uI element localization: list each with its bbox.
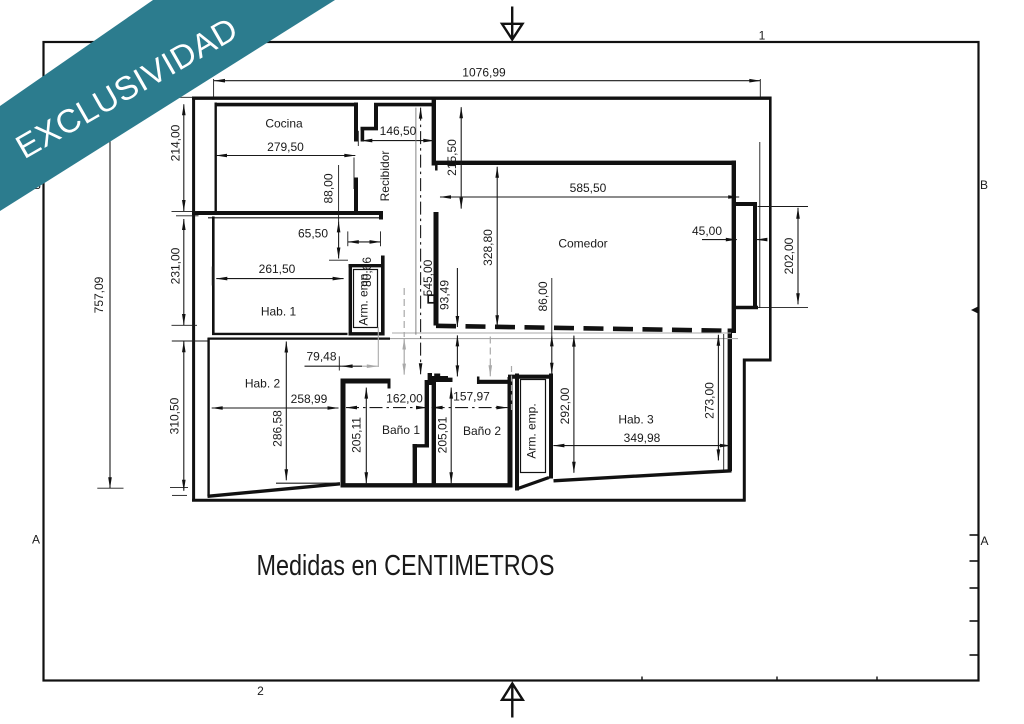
svg-text:162,00: 162,00	[386, 392, 423, 406]
svg-text:261,50: 261,50	[259, 262, 296, 276]
svg-text:2: 2	[257, 684, 264, 698]
svg-text:273,00: 273,00	[703, 382, 717, 419]
svg-text:292,00: 292,00	[558, 387, 572, 424]
svg-text:258,99: 258,99	[291, 392, 328, 406]
svg-text:231,00: 231,00	[169, 247, 183, 284]
svg-text:A: A	[32, 533, 40, 547]
svg-text:328,80: 328,80	[481, 229, 495, 266]
svg-text:1: 1	[759, 29, 766, 43]
svg-text:214,00: 214,00	[169, 124, 183, 161]
svg-text:Comedor: Comedor	[558, 237, 607, 251]
svg-text:65,50: 65,50	[298, 227, 328, 241]
svg-text:1076,99: 1076,99	[462, 66, 506, 80]
svg-text:Hab. 2: Hab. 2	[245, 377, 281, 391]
svg-text:146,50: 146,50	[380, 124, 417, 138]
svg-text:157,97: 157,97	[453, 390, 490, 404]
svg-text:93,49: 93,49	[438, 280, 452, 310]
svg-text:215,50: 215,50	[445, 139, 459, 176]
svg-text:202,00: 202,00	[782, 237, 796, 274]
svg-text:545,00: 545,00	[421, 259, 435, 296]
svg-text:279,50: 279,50	[267, 140, 304, 154]
svg-text:585,50: 585,50	[570, 181, 607, 195]
svg-text:Medidas en CENTIMETROS: Medidas en CENTIMETROS	[257, 550, 555, 582]
svg-text:349,98: 349,98	[624, 431, 661, 445]
svg-text:79,48: 79,48	[306, 350, 336, 364]
svg-text:B: B	[980, 178, 988, 192]
svg-text:205,01: 205,01	[436, 416, 450, 453]
svg-text:Cocina: Cocina	[265, 117, 303, 131]
svg-text:45,00: 45,00	[692, 224, 722, 238]
svg-text:Arm. emp.: Arm. emp.	[525, 403, 539, 458]
svg-text:88,00: 88,00	[322, 173, 336, 203]
svg-text:Hab. 1: Hab. 1	[261, 305, 297, 319]
svg-text:205,11: 205,11	[350, 417, 364, 453]
svg-text:86,00: 86,00	[536, 281, 550, 311]
svg-text:286,58: 286,58	[271, 410, 285, 447]
svg-text:Recibidor: Recibidor	[378, 151, 392, 202]
svg-text:A: A	[981, 534, 989, 548]
svg-text:Baño 1: Baño 1	[382, 423, 420, 437]
svg-text:Baño 2: Baño 2	[463, 424, 501, 438]
svg-text:Arm. emp.: Arm. emp.	[357, 270, 371, 325]
svg-text:Hab. 3: Hab. 3	[618, 412, 654, 426]
svg-text:310,50: 310,50	[168, 397, 182, 434]
svg-text:757,09: 757,09	[92, 276, 106, 313]
